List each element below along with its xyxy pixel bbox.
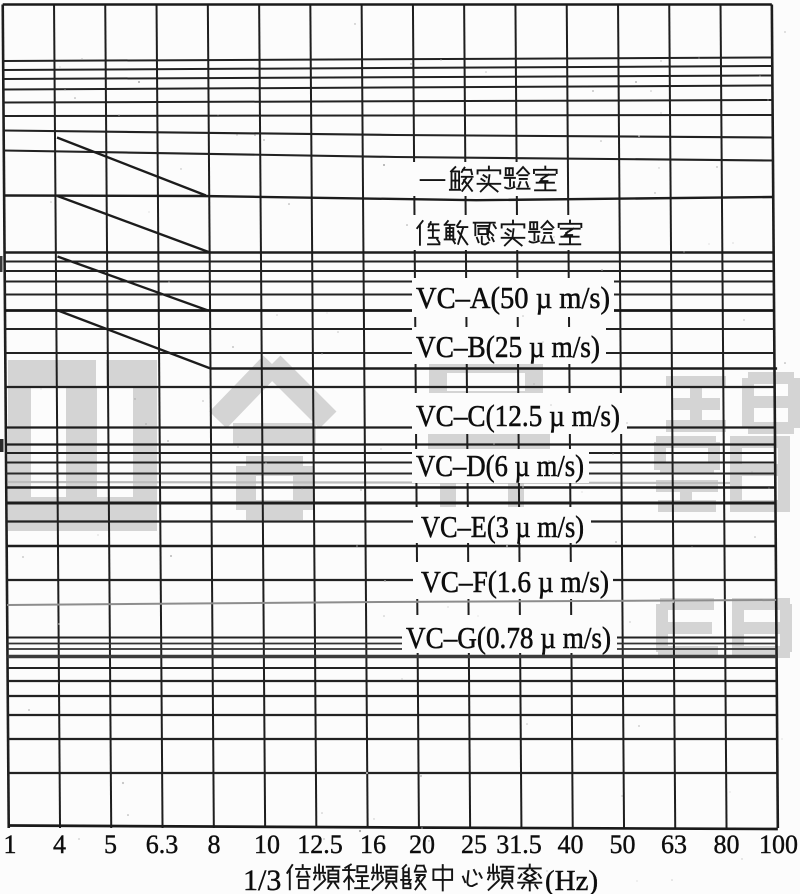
svg-text:6.3: 6.3 (146, 830, 179, 859)
svg-text:8: 8 (208, 830, 221, 859)
svg-text:VC–A(50 µ m/s): VC–A(50 µ m/s) (416, 280, 610, 315)
svg-text:31.5: 31.5 (496, 830, 542, 859)
svg-text:100: 100 (759, 830, 798, 859)
svg-text:VC–D(6 µ m/s): VC–D(6 µ m/s) (416, 448, 584, 483)
svg-text:16: 16 (360, 830, 386, 859)
svg-text:VC–F(1.6 µ m/s): VC–F(1.6 µ m/s) (421, 564, 609, 599)
svg-text:VC–E(3 µ m/s): VC–E(3 µ m/s) (421, 509, 584, 544)
svg-text:(Hz): (Hz) (545, 865, 598, 894)
svg-text:5: 5 (104, 830, 117, 859)
svg-text:VC–G(0.78 µ m/s): VC–G(0.78 µ m/s) (406, 620, 611, 655)
svg-text:20: 20 (409, 830, 435, 859)
svg-text:12.5: 12.5 (297, 830, 343, 859)
svg-text:10: 10 (254, 830, 280, 859)
svg-text:63: 63 (661, 830, 687, 859)
svg-text:1: 1 (4, 830, 17, 859)
svg-text:4: 4 (53, 830, 66, 859)
svg-text:1/3: 1/3 (243, 864, 281, 894)
svg-text:40: 40 (558, 830, 584, 859)
svg-text:VC–B(25 µ m/s): VC–B(25 µ m/s) (416, 329, 600, 364)
svg-text:25: 25 (461, 830, 487, 859)
svg-text:VC–C(12.5 µ m/s): VC–C(12.5 µ m/s) (416, 398, 620, 433)
svg-text:80: 80 (714, 830, 740, 859)
svg-text:50: 50 (610, 830, 636, 859)
